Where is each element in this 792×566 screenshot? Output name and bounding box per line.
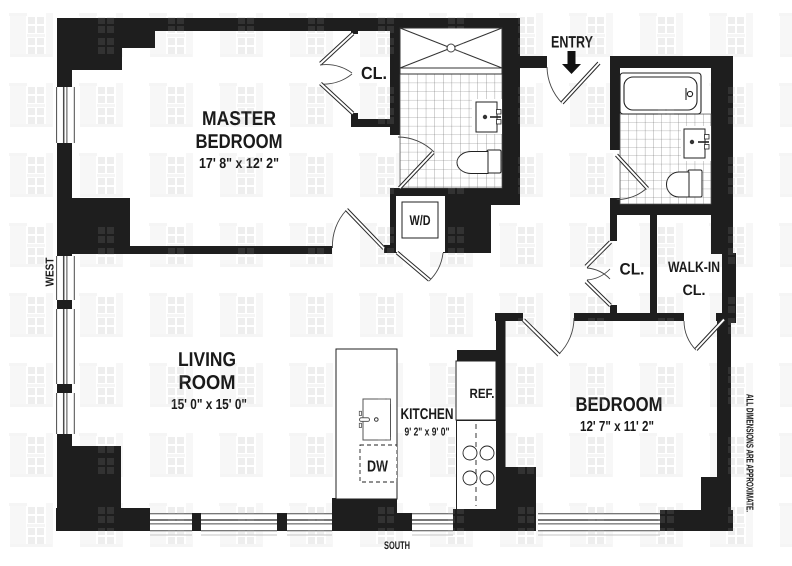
- svg-text:17' 8" x 12' 2": 17' 8" x 12' 2": [199, 156, 279, 172]
- svg-text:15' 0" x 15' 0": 15' 0" x 15' 0": [171, 397, 247, 413]
- svg-text:W/D: W/D: [410, 212, 431, 228]
- svg-text:DW: DW: [367, 459, 389, 476]
- svg-text:CL.: CL.: [683, 282, 706, 299]
- svg-text:SOUTH: SOUTH: [384, 540, 410, 552]
- svg-text:BEDROOM: BEDROOM: [576, 394, 663, 416]
- svg-text:BEDROOM: BEDROOM: [196, 131, 283, 153]
- svg-text:CL.: CL.: [361, 63, 387, 83]
- svg-text:12' 7" x 11' 2": 12' 7" x 11' 2": [580, 419, 654, 435]
- svg-text:WALK-IN: WALK-IN: [668, 259, 720, 276]
- svg-text:MASTER: MASTER: [202, 108, 276, 130]
- svg-text:LIVING: LIVING: [178, 349, 236, 371]
- svg-text:WEST: WEST: [45, 258, 57, 287]
- svg-text:ROOM: ROOM: [179, 372, 236, 394]
- svg-text:CL.: CL.: [620, 261, 645, 279]
- svg-text:REF.: REF.: [470, 386, 495, 401]
- svg-text:ALL DIMENSIONS ARE APPROXIMATE: ALL DIMENSIONS ARE APPROXIMATE.: [744, 394, 755, 512]
- svg-text:ENTRY: ENTRY: [551, 34, 593, 52]
- svg-text:KITCHEN: KITCHEN: [401, 406, 454, 423]
- svg-text:9' 2" x 9' 0": 9' 2" x 9' 0": [405, 427, 450, 439]
